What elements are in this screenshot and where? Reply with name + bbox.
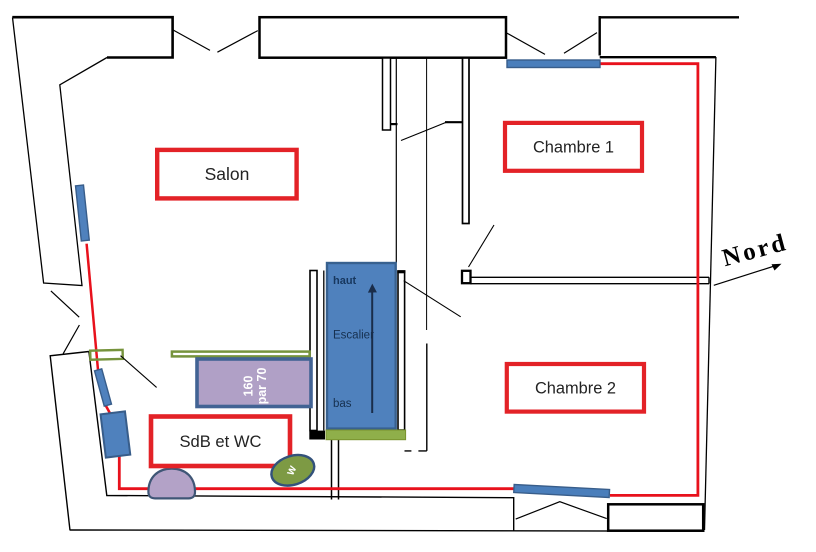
svg-text:SdB et WC: SdB et WC <box>179 432 261 451</box>
svg-text:Chambre 1: Chambre 1 <box>533 138 614 156</box>
svg-text:Chambre 2: Chambre 2 <box>535 379 616 397</box>
svg-text:Salon: Salon <box>205 164 250 184</box>
svg-text:Escalier: Escalier <box>333 329 374 341</box>
svg-text:haut: haut <box>333 275 357 287</box>
svg-text:bas: bas <box>333 398 352 410</box>
